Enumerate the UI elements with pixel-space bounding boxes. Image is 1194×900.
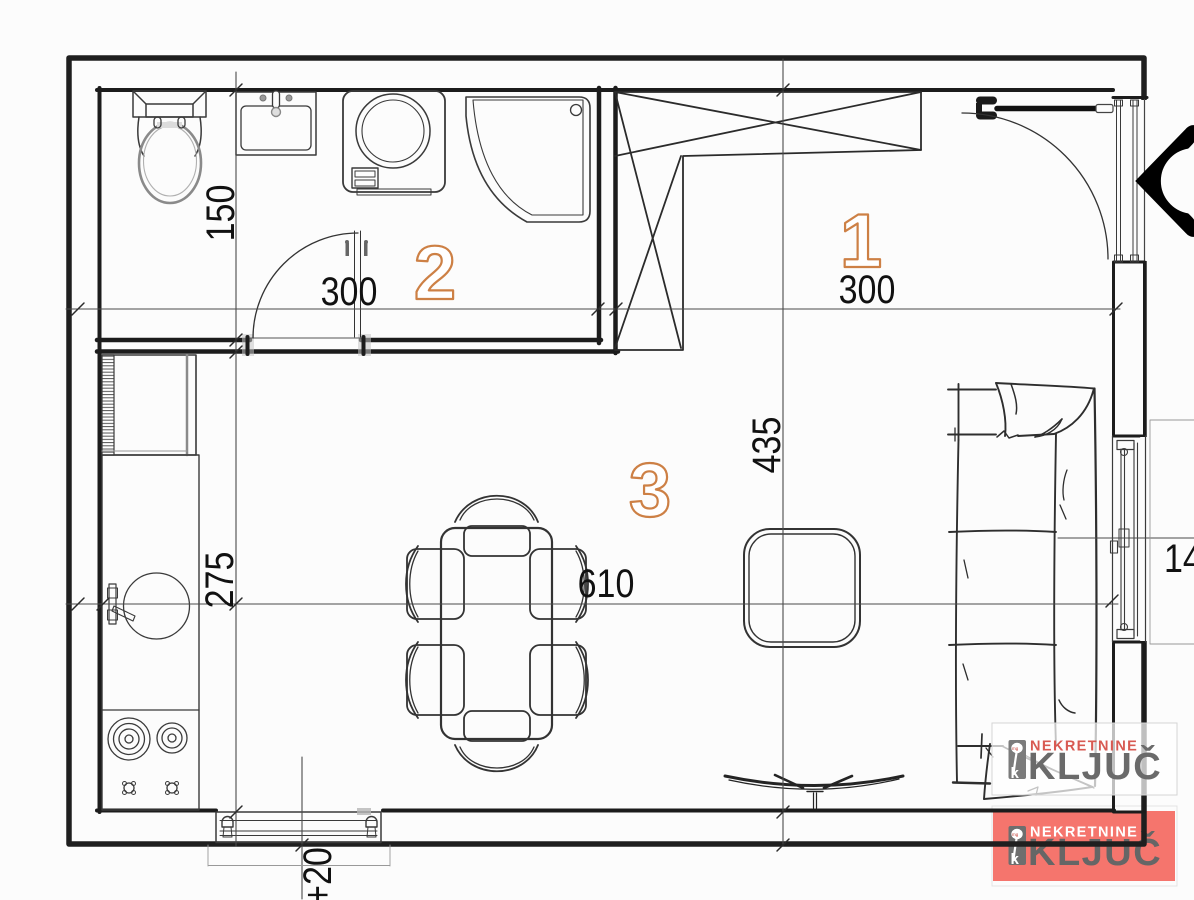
svg-text:275: 275 — [196, 552, 241, 609]
svg-text:140: 140 — [1164, 535, 1194, 580]
svg-text:1: 1 — [840, 199, 882, 284]
svg-text:KLJUČ: KLJUČ — [1028, 743, 1162, 788]
svg-text:mg: mg — [1012, 746, 1019, 751]
svg-text:k: k — [1011, 765, 1020, 782]
svg-text:150: 150 — [197, 185, 242, 242]
svg-text:k: k — [1011, 851, 1020, 868]
svg-text:610: 610 — [578, 560, 635, 605]
svg-text:+20: +20 — [294, 847, 339, 900]
svg-text:3: 3 — [629, 448, 671, 533]
svg-text:2: 2 — [414, 231, 456, 316]
svg-text:mg: mg — [1012, 832, 1019, 837]
svg-text:435: 435 — [743, 417, 788, 474]
svg-text:300: 300 — [321, 268, 378, 313]
